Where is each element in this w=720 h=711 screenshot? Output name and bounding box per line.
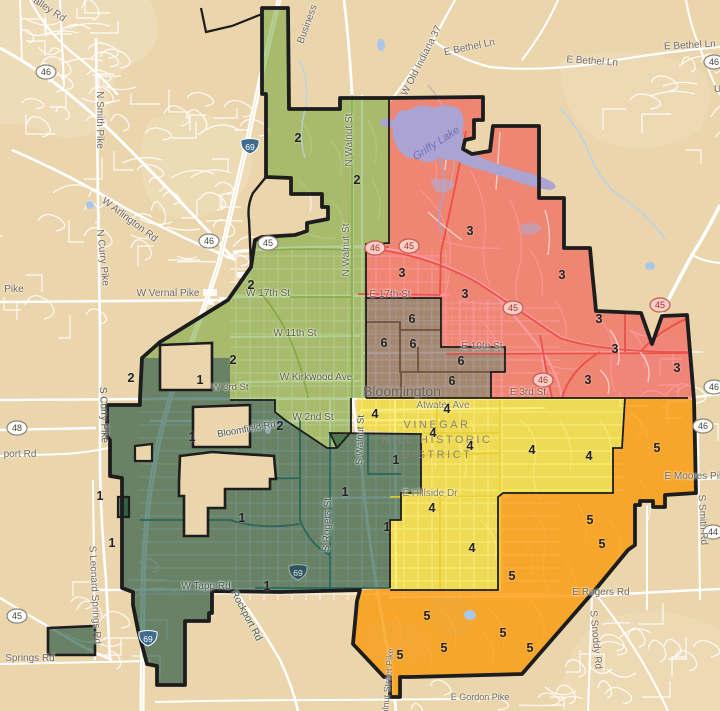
svg-text:E 17th St: E 17th St [369, 289, 410, 300]
svg-text:2: 2 [354, 173, 361, 187]
svg-text:DISTRICT: DISTRICT [402, 449, 473, 461]
svg-text:4: 4 [444, 402, 451, 416]
svg-text:4: 4 [586, 449, 593, 463]
svg-text:45: 45 [655, 300, 665, 310]
svg-text:1: 1 [393, 453, 400, 467]
svg-text:E Moores Pike: E Moores Pike [664, 471, 720, 482]
svg-text:S Rogers St: S Rogers St [321, 498, 334, 552]
svg-text:5: 5 [599, 537, 606, 551]
svg-text:E Hillside Dr: E Hillside Dr [402, 488, 458, 499]
svg-text:45: 45 [404, 241, 414, 251]
svg-text:69: 69 [143, 634, 153, 644]
svg-text:2: 2 [248, 278, 255, 292]
svg-text:48: 48 [12, 423, 22, 433]
svg-text:46: 46 [41, 67, 51, 77]
svg-text:1: 1 [264, 579, 271, 593]
svg-text:E Rogers Rd: E Rogers Rd [572, 587, 629, 598]
svg-text:46: 46 [709, 57, 719, 67]
svg-text:3: 3 [612, 342, 619, 356]
svg-text:2: 2 [277, 419, 284, 433]
svg-text:1: 1 [189, 430, 196, 444]
svg-text:46: 46 [370, 243, 380, 253]
svg-text:4: 4 [467, 439, 474, 453]
svg-text:1: 1 [384, 520, 391, 534]
svg-text:3: 3 [596, 312, 603, 326]
svg-text:1: 1 [239, 511, 246, 525]
svg-text:E 3rd St: E 3rd St [510, 387, 546, 398]
svg-text:N Walnut St: N Walnut St [344, 113, 355, 166]
svg-text:5: 5 [654, 441, 661, 455]
svg-text:W Vernal Pike: W Vernal Pike [137, 288, 200, 299]
svg-text:HILL HISTORIC: HILL HISTORIC [382, 434, 493, 446]
svg-text:46: 46 [709, 382, 719, 392]
svg-text:Springs Rd: Springs Rd [5, 653, 54, 664]
svg-text:Bloomington: Bloomington [363, 383, 441, 399]
svg-text:S Walnut St: S Walnut St [354, 414, 367, 465]
svg-text:4: 4 [430, 426, 437, 440]
svg-text:W Kirkwood Ave: W Kirkwood Ave [280, 372, 353, 383]
svg-text:6: 6 [409, 312, 416, 326]
svg-text:3: 3 [559, 268, 566, 282]
svg-text:N Walnut St: N Walnut St [341, 223, 352, 276]
svg-text:1: 1 [197, 373, 204, 387]
svg-text:3: 3 [467, 224, 474, 238]
svg-text:1: 1 [109, 536, 116, 550]
svg-text:2: 2 [295, 131, 302, 145]
svg-text:69: 69 [293, 568, 303, 578]
svg-text:S Curry Pike: S Curry Pike [97, 387, 110, 444]
svg-text:46: 46 [698, 421, 708, 431]
svg-text:5: 5 [587, 513, 594, 527]
svg-text:2: 2 [230, 353, 237, 367]
svg-text:W 3rd St: W 3rd St [212, 382, 249, 393]
svg-text:W 2nd St: W 2nd St [292, 412, 333, 423]
svg-text:4: 4 [529, 443, 536, 457]
svg-text:1: 1 [342, 485, 349, 499]
svg-text:45: 45 [12, 611, 22, 621]
svg-text:1: 1 [97, 489, 104, 503]
svg-text:6: 6 [381, 336, 388, 350]
svg-text:E Gordon Pike: E Gordon Pike [451, 692, 510, 702]
svg-text:3: 3 [399, 266, 406, 280]
svg-text:46: 46 [538, 375, 548, 385]
svg-text:3: 3 [585, 373, 592, 387]
svg-text:5: 5 [527, 641, 534, 655]
svg-text:5: 5 [509, 569, 516, 583]
svg-text:5: 5 [397, 648, 404, 662]
svg-text:W Tapp Rd: W Tapp Rd [181, 581, 230, 592]
svg-text:4: 4 [429, 501, 436, 515]
svg-text:W 11th St: W 11th St [273, 328, 316, 339]
svg-text:3: 3 [674, 361, 681, 375]
svg-text:46: 46 [204, 236, 214, 246]
svg-text:E 10th St: E 10th St [461, 341, 502, 352]
svg-text:69: 69 [245, 142, 255, 152]
svg-text:N Smith Pike: N Smith Pike [94, 91, 105, 149]
svg-text:4: 4 [372, 407, 379, 421]
svg-text:port Rd: port Rd [4, 449, 37, 460]
svg-text:45: 45 [263, 238, 273, 248]
svg-text:6: 6 [458, 354, 465, 368]
svg-text:5: 5 [424, 609, 431, 623]
svg-text:U: U [714, 84, 720, 95]
svg-text:Pike: Pike [4, 284, 24, 295]
svg-text:5: 5 [441, 641, 448, 655]
svg-text:45: 45 [508, 303, 518, 313]
svg-text:3: 3 [462, 287, 469, 301]
svg-text:VINEGAR: VINEGAR [403, 419, 470, 431]
svg-text:2: 2 [128, 371, 135, 385]
svg-text:6: 6 [410, 337, 417, 351]
svg-text:4: 4 [469, 541, 476, 555]
svg-text:5: 5 [500, 626, 507, 640]
svg-text:6: 6 [449, 374, 456, 388]
